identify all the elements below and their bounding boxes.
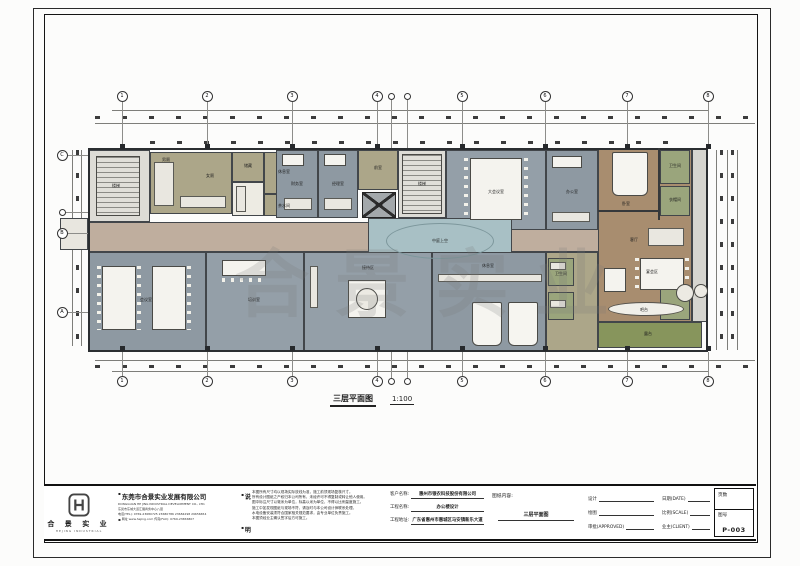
column xyxy=(290,346,295,351)
sheet-number-box: 页数 图号 P-003 xyxy=(714,488,754,537)
drawing-content: 图纸内容: 三层平面图 xyxy=(488,486,584,539)
plan-caption: 三层平面图 1:100 xyxy=(330,393,414,407)
counter-symbol xyxy=(236,186,246,212)
room-label: 客厅 xyxy=(630,238,638,242)
logo-sub: HEJING INDUSTRIAL xyxy=(56,529,103,533)
axis-bubble: 8 xyxy=(703,91,714,102)
dimension-line xyxy=(716,150,717,350)
axis-bubble: B xyxy=(57,228,68,239)
drawing-sheet: { "sheet": { "watermark": "合景实业", "capti… xyxy=(0,0,800,566)
counter-symbol xyxy=(648,228,684,246)
axis-leader xyxy=(545,102,546,149)
axis-leader xyxy=(391,100,392,149)
axis-bubble: 1 xyxy=(117,91,128,102)
draw-line xyxy=(599,509,654,516)
owner-label: 业主(CLIENT) xyxy=(662,524,690,530)
axis-bubble: 8 xyxy=(703,376,714,387)
axis-bubble: 1 xyxy=(117,376,128,387)
counter-symbol xyxy=(180,196,226,208)
bullet-icon: ▪ xyxy=(241,525,244,530)
table-symbol xyxy=(222,260,266,276)
column xyxy=(205,144,210,149)
project-addr-value: 广东省惠州市惠城区马安镇新乐大道 xyxy=(411,517,484,525)
room-label: 茶水间 xyxy=(278,204,290,208)
approve-label: 审批(APPROVED) xyxy=(588,524,624,530)
axis-bubble: 3 xyxy=(287,91,298,102)
column xyxy=(375,144,380,149)
axis-bubble: A xyxy=(57,307,68,318)
floor-plan: 楼梯男厕女厕储藏休息室茶水间财务室经理室前室电梯楼梯大会议室办公室卧室卫生间衣帽… xyxy=(0,0,800,566)
counter-symbol xyxy=(154,162,174,206)
plan-title: 三层平面图 xyxy=(330,393,376,407)
note-line: 图中标注尺寸以毫米为单位，标高以米为单位，不得以比例量度施工。 xyxy=(252,500,382,505)
counter-symbol xyxy=(310,266,318,308)
circle-symbol xyxy=(356,288,378,310)
room-label: 休息室 xyxy=(278,170,290,174)
date-line xyxy=(688,495,710,502)
axis-leader xyxy=(66,212,89,213)
company-tel: 电话(TEL): 0769-23680725 23680786 23684298… xyxy=(118,512,232,516)
column xyxy=(460,144,465,149)
project-name-label: 工程名称: xyxy=(390,504,409,510)
room-label: 储藏 xyxy=(244,164,252,168)
company-info: ▪东莞市合景实业发展有限公司 DONGGUAN HE JING INDUSTRI… xyxy=(114,486,236,539)
room-label: 办公室 xyxy=(566,190,578,194)
axis-leader xyxy=(377,102,378,149)
dots-v-symbol xyxy=(187,266,191,330)
axis-leader xyxy=(462,352,463,376)
dimension-line xyxy=(727,150,728,350)
scale-label: 比例(SCALE) xyxy=(662,510,688,516)
client-value: 惠州市银农科技股份有限公司 xyxy=(411,491,484,499)
logo-name: 合 景 实 业 xyxy=(47,519,110,529)
room-label: 吧台 xyxy=(640,308,648,312)
plan-scale: 1:100 xyxy=(390,395,414,405)
signature-column-1: 设计 绘图 审批(APPROVED) xyxy=(584,486,658,539)
axis-leader xyxy=(462,102,463,149)
company-logo: 合 景 实 业 HEJING INDUSTRIAL xyxy=(44,486,114,539)
company-name: 东莞市合景实业发展有限公司 xyxy=(122,493,207,501)
bed-symbol xyxy=(508,302,538,346)
axis-bubble: C xyxy=(57,150,68,161)
drawing-content-value: 三层平面图 xyxy=(498,511,574,521)
axis-leader xyxy=(292,352,293,376)
column xyxy=(375,346,380,351)
room-label: 露台 xyxy=(644,332,652,336)
date-label: 日期(DATE) xyxy=(662,496,686,502)
room-label: 电梯 xyxy=(375,203,383,207)
axis-leader xyxy=(122,102,123,149)
axis-leader xyxy=(377,352,378,376)
hejing-logo-icon xyxy=(68,493,90,517)
axis-bubble: 2 xyxy=(202,376,213,387)
signature-column-2: 日期(DATE) 比例(SCALE) 业主(CLIENT) xyxy=(658,486,714,539)
room-label: 中庭上空 xyxy=(432,239,448,243)
counter-symbol xyxy=(550,262,566,270)
axis-bubble: 4 xyxy=(372,91,383,102)
scale-line xyxy=(690,509,710,516)
axis-bubble: 7 xyxy=(622,376,633,387)
note-line: 本图须经业主确认签字后方可施工。 xyxy=(252,516,382,521)
axis-bubble: 5 xyxy=(457,91,468,102)
dots-v-symbol xyxy=(635,258,639,290)
draw-label: 绘图 xyxy=(588,510,597,516)
counter-symbol xyxy=(550,300,566,308)
room-label: 前室 xyxy=(374,166,382,170)
axis-leader xyxy=(708,352,709,376)
approve-line xyxy=(626,523,654,530)
design-label: 设计 xyxy=(588,496,597,502)
column xyxy=(625,144,630,149)
column xyxy=(625,346,630,351)
dimension-line xyxy=(95,360,755,361)
table-symbol xyxy=(282,154,304,166)
axis-leader xyxy=(207,102,208,149)
dimension-text-col xyxy=(720,150,723,350)
axis-leader xyxy=(68,155,89,156)
room-label: 楼梯 xyxy=(112,184,120,188)
counter-symbol xyxy=(552,212,590,222)
axis-bubble: 3 xyxy=(287,376,298,387)
dimension-text-row xyxy=(95,116,755,119)
axis-bubble: 2 xyxy=(202,91,213,102)
table-symbol xyxy=(152,266,186,330)
axis-bubble: 5 xyxy=(457,376,468,387)
axis-bubble: 6 xyxy=(540,376,551,387)
room-label: 卫生间 xyxy=(555,272,567,276)
axis-leader xyxy=(68,233,89,234)
table-symbol xyxy=(102,266,136,330)
door-code-row xyxy=(150,141,690,144)
table-symbol xyxy=(552,156,582,168)
room-label: 楼梯 xyxy=(418,182,426,186)
column xyxy=(543,144,548,149)
room-label: 休息室 xyxy=(482,264,494,268)
room-label: 衣帽间 xyxy=(669,198,681,202)
column xyxy=(543,346,548,351)
dimension-text-col xyxy=(731,150,734,350)
axis-leader xyxy=(391,352,392,378)
axis-leader xyxy=(407,100,408,149)
room-label: 卧室 xyxy=(622,202,630,206)
number-label: 图号 xyxy=(718,512,750,518)
project-addr-label: 工程地址: xyxy=(390,517,409,523)
room-label: 培训室 xyxy=(248,298,260,302)
counter-symbol xyxy=(438,274,542,282)
room-label: 会议室 xyxy=(140,298,152,302)
dots-symbol xyxy=(222,278,266,282)
table-symbol xyxy=(604,268,626,292)
notes-label-top: 说 xyxy=(245,494,251,501)
axis-bubble: 6 xyxy=(540,91,551,102)
dimension-text-row xyxy=(95,365,755,368)
room-label: 宴会区 xyxy=(646,270,658,274)
drawing-content-label: 图纸内容: xyxy=(492,492,580,499)
column xyxy=(120,144,125,149)
wall-segment xyxy=(598,210,658,212)
pages-label: 页数 xyxy=(715,489,753,510)
axis-leader xyxy=(708,102,709,149)
axis-leader xyxy=(627,352,628,376)
bullet-icon: ▪ xyxy=(118,491,121,496)
axis-leader xyxy=(207,352,208,376)
axis-bubble xyxy=(388,93,395,100)
axis-leader xyxy=(545,352,546,376)
room-label: 男厕 xyxy=(162,158,170,162)
dots-v-symbol xyxy=(464,158,468,220)
room-label: 财务室 xyxy=(291,182,303,186)
room-label: 女厕 xyxy=(206,174,214,178)
axis-leader xyxy=(68,312,89,313)
room-label: 卫生间 xyxy=(669,164,681,168)
company-name-en: DONGGUAN HE JING INDUSTRIAL DEVELOPMENT … xyxy=(118,502,232,506)
column xyxy=(706,144,711,149)
company-web: 网址 www.hejing.com 传真(FAX): 0769-23656807 xyxy=(122,517,194,521)
bullet-icon: ▪ xyxy=(241,492,244,497)
axis-leader xyxy=(627,102,628,149)
axis-bubble xyxy=(59,209,66,216)
design-line xyxy=(599,495,654,502)
axis-leader xyxy=(122,352,123,376)
project-info: 客户名称: 惠州市银农科技股份有限公司 工程名称: 办公楼设计 工程地址: 广东… xyxy=(386,486,488,539)
table-symbol xyxy=(324,154,346,166)
notes-label-bottom: 明 xyxy=(245,527,251,534)
axis-bubble xyxy=(404,378,411,385)
project-name-value: 办公楼设计 xyxy=(411,504,484,512)
axis-bubble: 7 xyxy=(622,91,633,102)
axis-bubble xyxy=(404,93,411,100)
column xyxy=(460,346,465,351)
room-label: 经理室 xyxy=(332,182,344,186)
table-symbol xyxy=(640,258,684,290)
bullet-icon: ▪ xyxy=(118,517,121,522)
dimension-line xyxy=(737,150,738,350)
owner-line xyxy=(692,523,710,530)
bed-symbol xyxy=(612,152,648,196)
notes-block: ▪说 ▪明 本图所有尺寸均以现场实际放线为准，施工前须现场复核尺寸。所有设计图纸… xyxy=(236,486,386,539)
room-label: 大会议室 xyxy=(488,190,504,194)
notes-lines: 本图所有尺寸均以现场实际放线为准，施工前须现场复核尺寸。所有设计图纸之产权归本公… xyxy=(252,490,382,536)
axis-bubble: 4 xyxy=(372,376,383,387)
company-address: 东莞市东城大道汇展商务中心八层 xyxy=(118,507,232,511)
circle-symbol xyxy=(694,284,708,298)
column xyxy=(120,346,125,351)
room-label: 接待区 xyxy=(362,266,374,270)
client-label: 客户名称: xyxy=(390,491,409,497)
dimension-line xyxy=(95,123,755,124)
counter-symbol xyxy=(324,198,352,210)
dots-v-symbol xyxy=(97,266,101,330)
axis-leader xyxy=(407,352,408,378)
wall-segment xyxy=(658,148,660,220)
axis-bubble xyxy=(388,378,395,385)
bed-symbol xyxy=(472,302,502,346)
column xyxy=(205,346,210,351)
axis-leader xyxy=(292,102,293,149)
dimension-line xyxy=(112,371,708,372)
column xyxy=(290,144,295,149)
sheet-number: P-003 xyxy=(718,526,750,534)
circle-symbol xyxy=(676,284,694,302)
dots-v-symbol xyxy=(524,158,528,220)
column xyxy=(706,346,711,351)
title-block: 合 景 实 业 HEJING INDUSTRIAL ▪东莞市合景实业发展有限公司… xyxy=(44,484,756,541)
dimension-line xyxy=(112,110,708,111)
